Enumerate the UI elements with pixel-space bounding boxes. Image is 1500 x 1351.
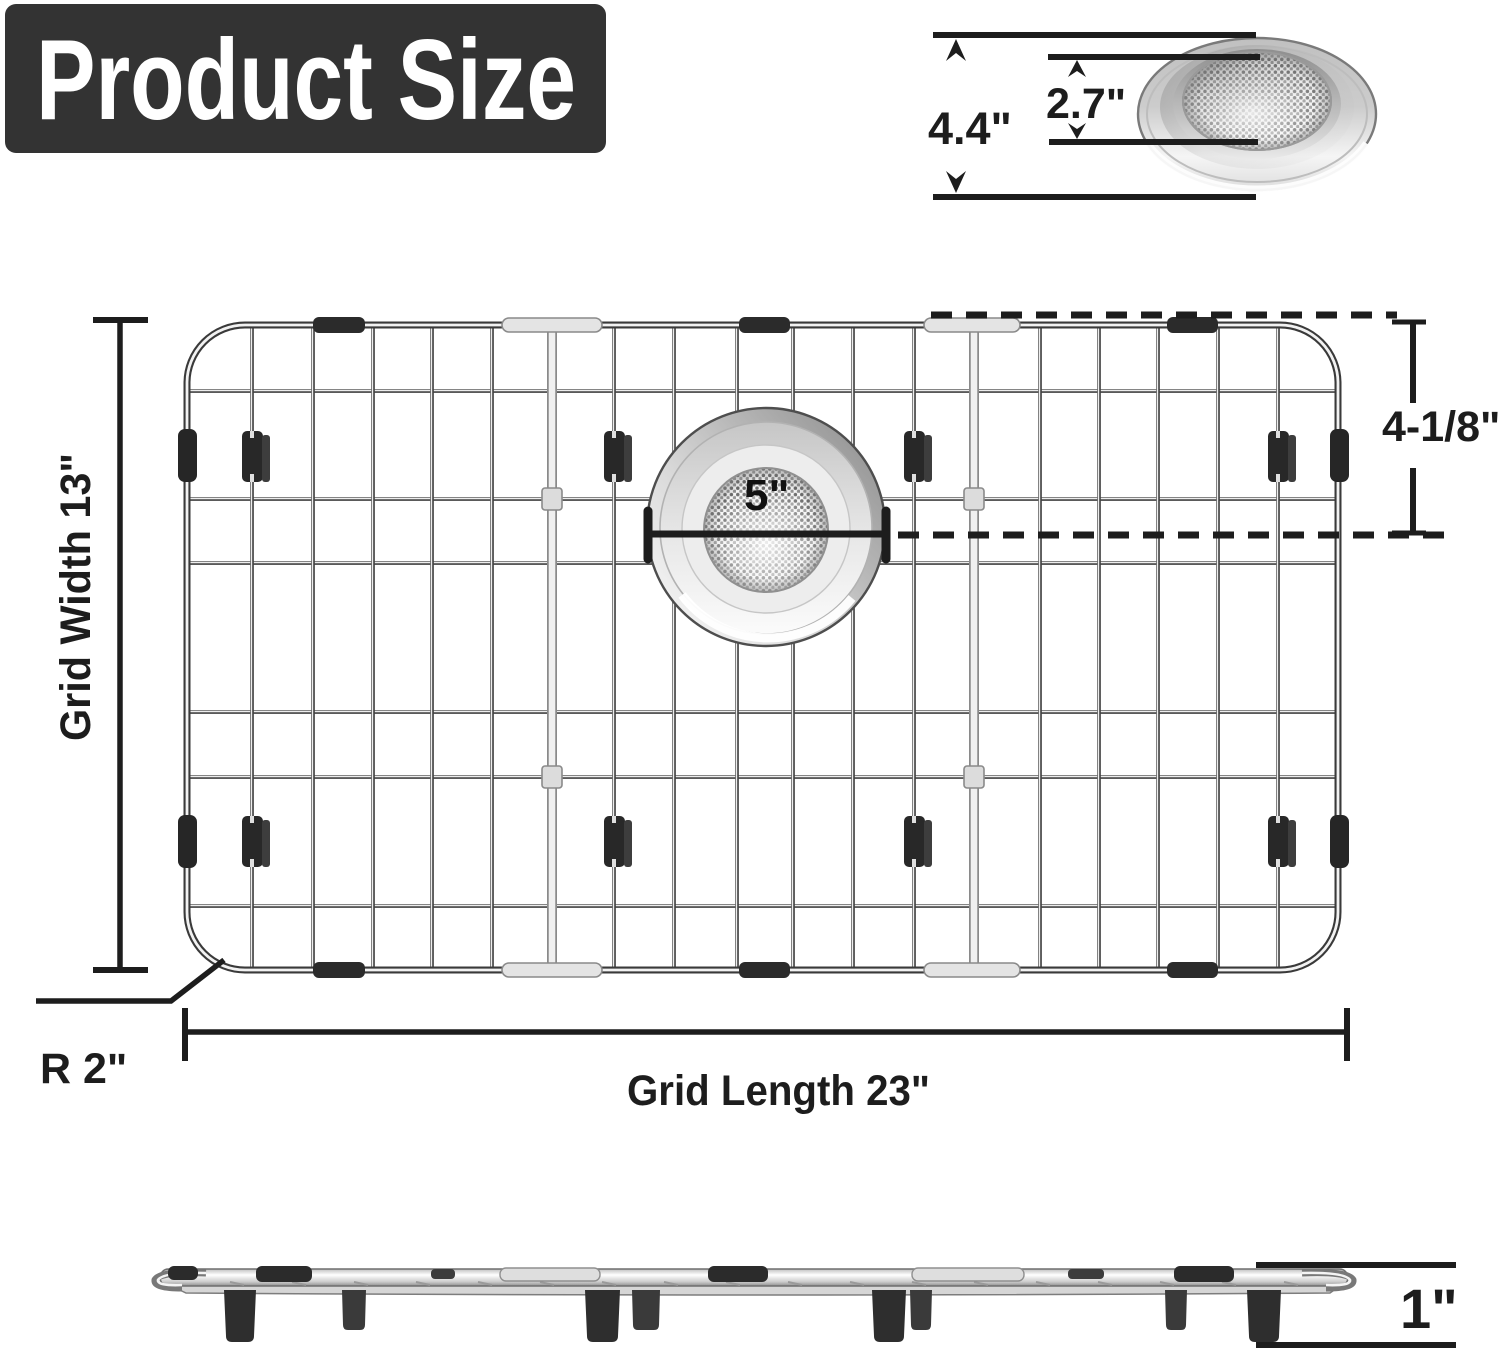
svg-text:2.7": 2.7" [1046, 80, 1126, 128]
svg-text:1": 1" [1400, 1277, 1458, 1340]
svg-text:4-1/8": 4-1/8" [1382, 403, 1500, 451]
svg-text:Grid Width 13": Grid Width 13" [52, 453, 100, 741]
svg-text:Grid Length 23": Grid Length 23" [627, 1067, 930, 1115]
svg-text:Product Size: Product Size [36, 17, 576, 144]
svg-text:R 2": R 2" [40, 1045, 127, 1093]
svg-text:5": 5" [744, 471, 789, 520]
svg-text:4.4": 4.4" [928, 103, 1012, 154]
